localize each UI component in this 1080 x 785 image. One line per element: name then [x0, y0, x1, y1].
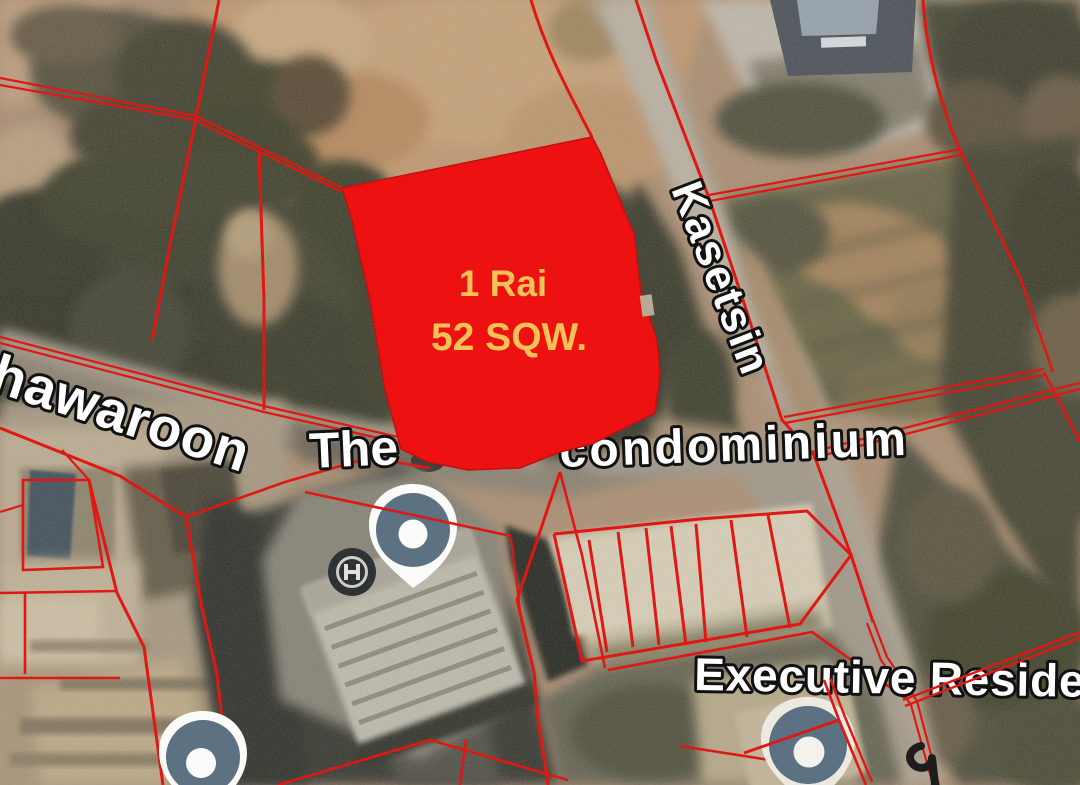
svg-text:1 Rai: 1 Rai [459, 263, 547, 304]
svg-text:Executive Reside: Executive Reside [694, 648, 1080, 707]
svg-text:The: The [308, 419, 399, 479]
svg-text:52 SQW.: 52 SQW. [431, 316, 587, 359]
